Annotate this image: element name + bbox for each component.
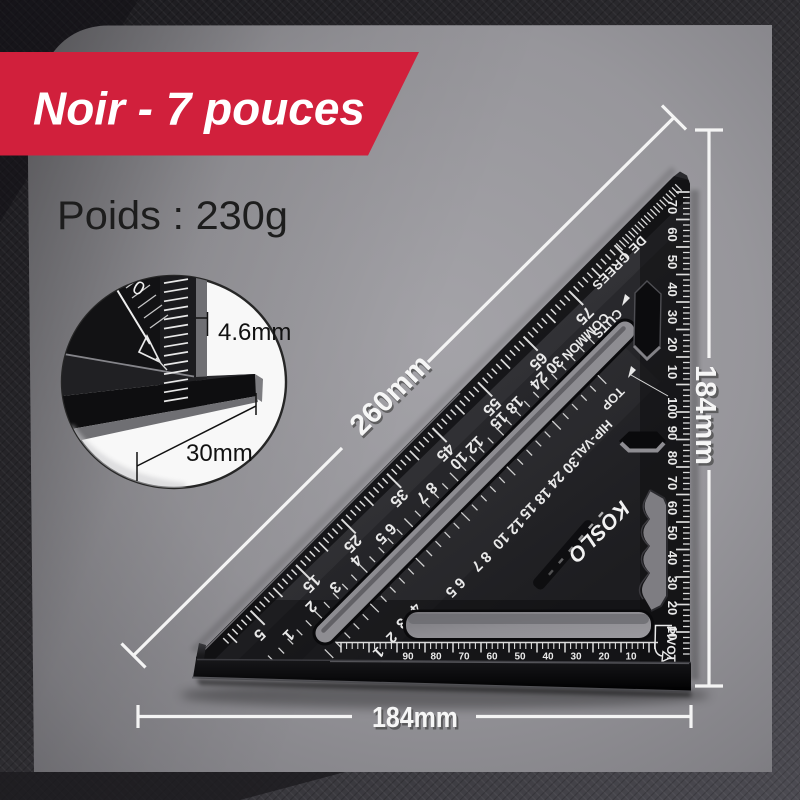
svg-text:70: 70	[665, 200, 680, 214]
svg-text:70: 70	[665, 476, 680, 490]
svg-text:30mm: 30mm	[186, 440, 253, 467]
svg-text:100: 100	[665, 397, 680, 419]
svg-text:10: 10	[665, 365, 680, 379]
svg-text:184mm: 184mm	[689, 365, 721, 465]
svg-text:40: 40	[665, 551, 680, 565]
svg-text:Poids : 230g: Poids : 230g	[57, 194, 288, 238]
svg-text:60: 60	[665, 501, 680, 515]
svg-text:30: 30	[665, 576, 680, 590]
svg-text:4.6mm: 4.6mm	[218, 319, 291, 346]
svg-text:Noir - 7 pouces: Noir - 7 pouces	[33, 83, 365, 135]
svg-text:30: 30	[665, 310, 680, 324]
svg-text:50: 50	[665, 526, 680, 540]
svg-text:20: 20	[598, 652, 610, 663]
svg-text:184mm: 184mm	[372, 702, 458, 734]
svg-text:50: 50	[665, 255, 680, 269]
svg-text:30: 30	[570, 652, 582, 663]
svg-text:40: 40	[665, 282, 680, 296]
svg-text:20: 20	[665, 601, 680, 615]
svg-text:90: 90	[665, 426, 680, 440]
svg-text:10: 10	[625, 652, 637, 663]
svg-text:80: 80	[665, 451, 680, 465]
svg-text:60: 60	[665, 227, 680, 241]
svg-text:20: 20	[665, 337, 680, 351]
svg-text:40: 40	[542, 652, 554, 663]
